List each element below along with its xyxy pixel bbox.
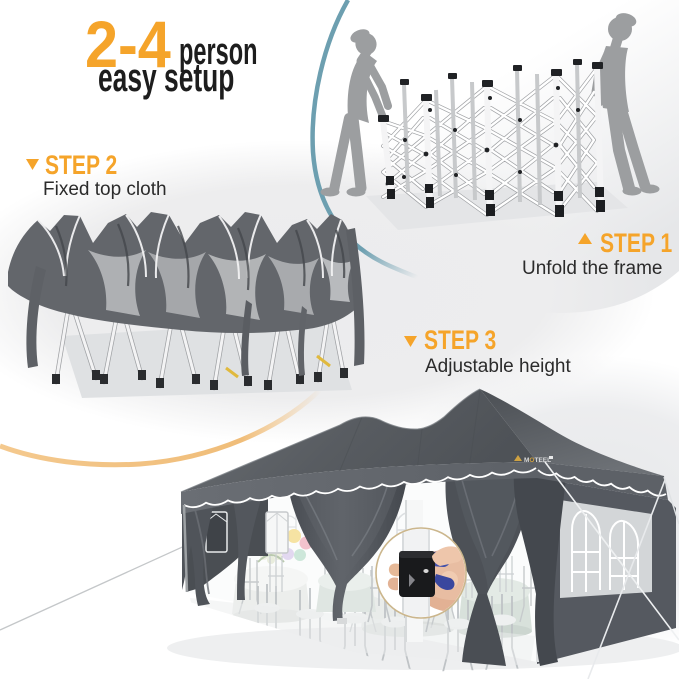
svg-text:STEP 3: STEP 3	[424, 326, 496, 356]
svg-text:easy setup: easy setup	[98, 56, 234, 101]
svg-text:MOTEEL: MOTEEL	[524, 457, 551, 464]
svg-text:Fixed top cloth: Fixed top cloth	[43, 179, 167, 200]
svg-text:STEP 2: STEP 2	[45, 151, 117, 181]
svg-text:STEP 1: STEP 1	[600, 229, 672, 259]
svg-text:Unfold the frame: Unfold the frame	[522, 258, 662, 279]
svg-text:Adjustable height: Adjustable height	[425, 356, 571, 377]
